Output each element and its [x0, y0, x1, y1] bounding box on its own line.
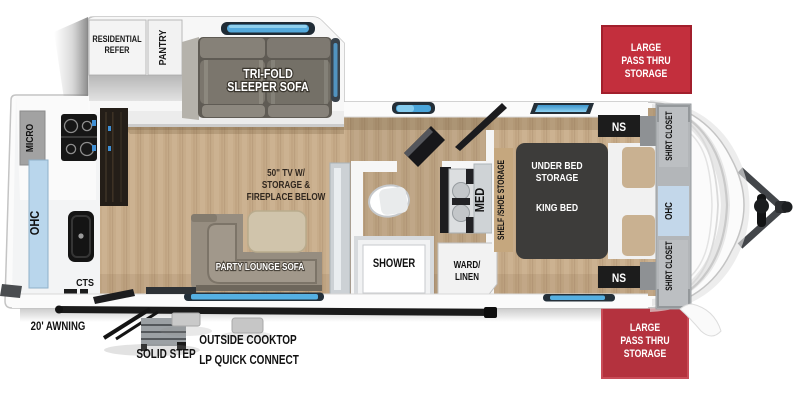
svg-text:MED: MED — [472, 187, 487, 212]
svg-text:PANTRY: PANTRY — [157, 29, 169, 65]
svg-text:PASS THRU: PASS THRU — [620, 335, 669, 347]
svg-text:50" TV W/: 50" TV W/ — [267, 167, 305, 178]
svg-text:SLEEPER SOFA: SLEEPER SOFA — [227, 80, 309, 94]
svg-text:SHIRT CLOSET: SHIRT CLOSET — [664, 241, 674, 291]
svg-text:LARGE: LARGE — [631, 42, 662, 54]
svg-text:TRI-FOLD: TRI-FOLD — [243, 67, 293, 81]
svg-text:KING BED: KING BED — [536, 202, 578, 214]
svg-text:CTS: CTS — [76, 277, 94, 289]
svg-text:REFER: REFER — [104, 44, 129, 55]
svg-text:MICRO: MICRO — [24, 124, 35, 152]
svg-text:RESIDENTIAL: RESIDENTIAL — [92, 33, 141, 44]
svg-text:STORAGE &: STORAGE & — [262, 179, 311, 190]
svg-text:LP QUICK CONNECT: LP QUICK CONNECT — [199, 354, 299, 367]
svg-text:SHIRT CLOSET: SHIRT CLOSET — [664, 111, 674, 161]
svg-text:PARTY LOUNGE SOFA: PARTY LOUNGE SOFA — [216, 261, 305, 272]
svg-text:WARD/: WARD/ — [454, 259, 481, 270]
svg-text:20' AWNING: 20' AWNING — [31, 320, 86, 333]
svg-text:NS: NS — [612, 121, 626, 134]
svg-text:NS: NS — [612, 272, 626, 285]
svg-text:SHOWER: SHOWER — [373, 257, 416, 270]
svg-text:LINEN: LINEN — [455, 271, 479, 282]
svg-text:PASS THRU: PASS THRU — [621, 55, 670, 67]
svg-text:STORAGE: STORAGE — [625, 68, 668, 80]
svg-text:SOLID STEP: SOLID STEP — [136, 348, 196, 361]
svg-text:SHELF /SHOE STORAGE: SHELF /SHOE STORAGE — [496, 160, 506, 240]
svg-text:FIREPLACE BELOW: FIREPLACE BELOW — [247, 191, 326, 202]
svg-text:LARGE: LARGE — [630, 322, 661, 334]
svg-text:OHC: OHC — [663, 202, 674, 220]
svg-text:OUTSIDE COOKTOP: OUTSIDE COOKTOP — [199, 334, 297, 347]
svg-text:STORAGE: STORAGE — [624, 348, 667, 360]
svg-text:UNDER BED: UNDER BED — [531, 160, 582, 172]
svg-text:OHC: OHC — [27, 210, 42, 235]
svg-text:STORAGE: STORAGE — [536, 172, 579, 184]
